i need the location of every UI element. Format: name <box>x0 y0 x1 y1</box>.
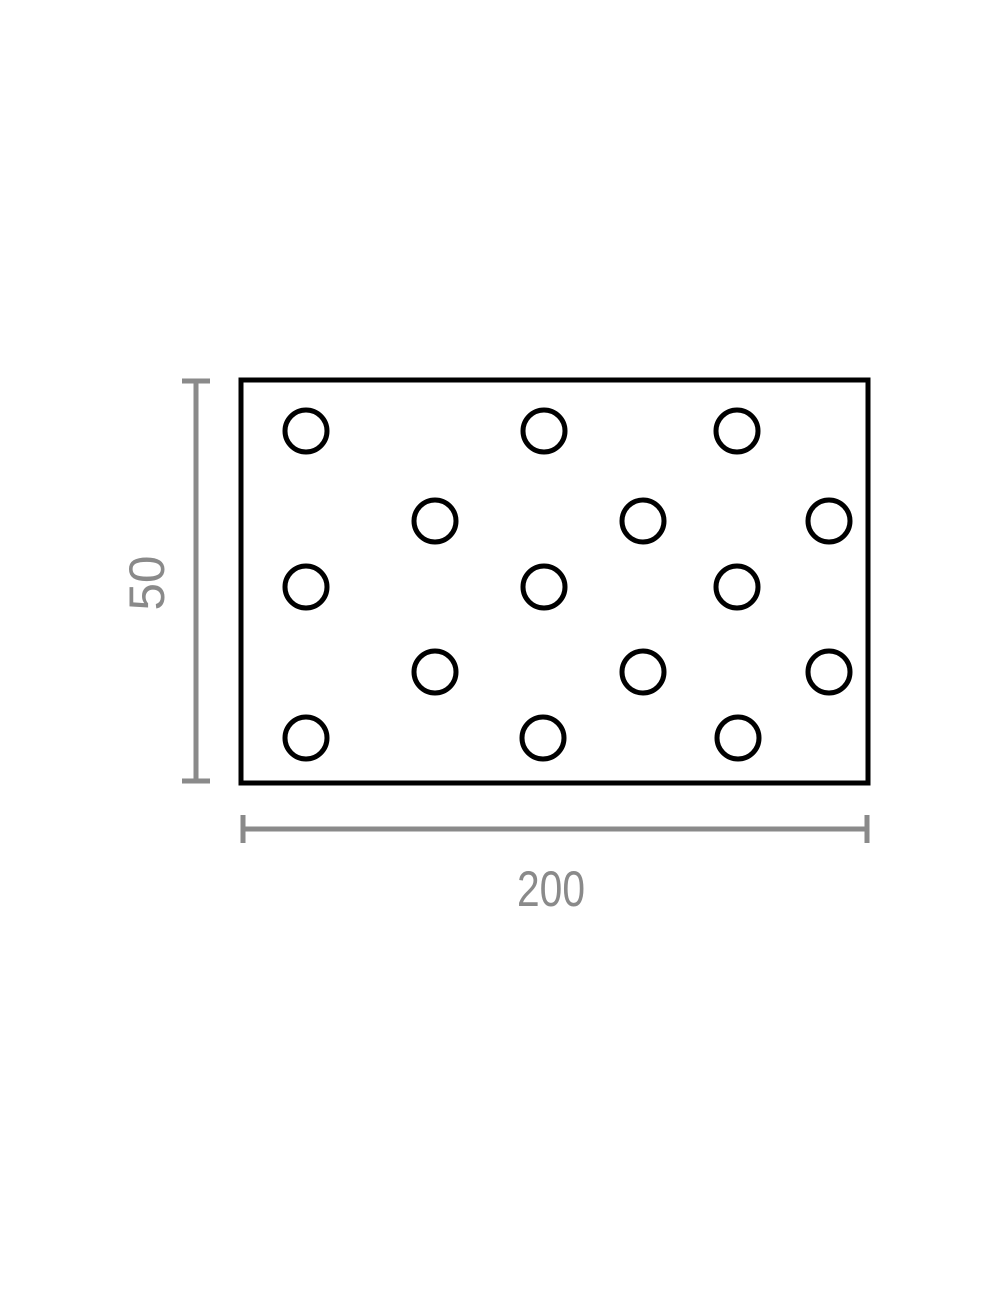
hole <box>285 566 327 608</box>
hole <box>808 500 850 542</box>
width-dimension: 200 <box>243 815 867 917</box>
hole <box>716 566 758 608</box>
hole <box>414 500 456 542</box>
hole <box>522 717 564 759</box>
height-dimension: 50 <box>119 381 210 781</box>
height-dimension-label: 50 <box>119 556 175 611</box>
width-dimension-label: 200 <box>517 861 585 917</box>
hole <box>414 651 456 693</box>
hole <box>717 717 759 759</box>
hole <box>716 410 758 452</box>
hole <box>622 500 664 542</box>
hole <box>523 410 565 452</box>
hole <box>285 717 327 759</box>
dimension-drawing: 50 200 <box>0 0 1000 1300</box>
hole <box>622 651 664 693</box>
hole <box>808 651 850 693</box>
drawing-canvas: 50 200 <box>0 0 1000 1300</box>
hole <box>523 566 565 608</box>
hole <box>285 410 327 452</box>
